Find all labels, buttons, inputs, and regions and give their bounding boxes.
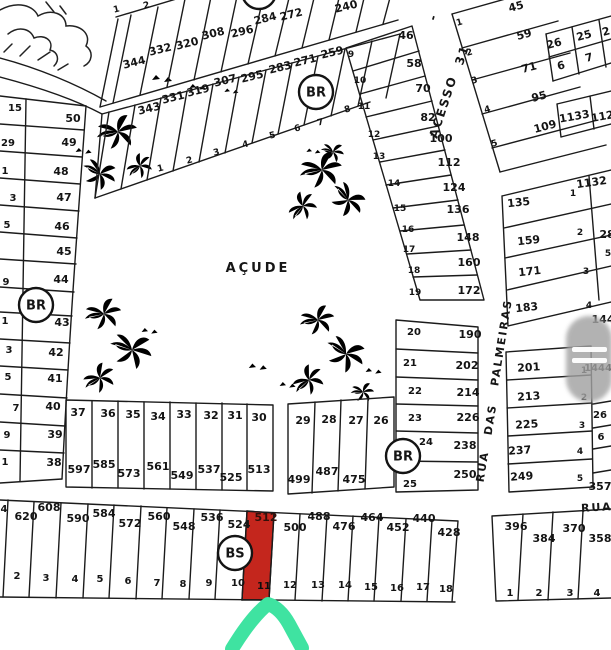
lot-number-label: 213 [517, 389, 541, 404]
lot-number-label: 307 [212, 72, 237, 90]
lot-number-label: 18 [439, 584, 453, 595]
lot-number-label: 13 [311, 580, 325, 591]
lot-number-label: 1 [507, 588, 514, 599]
lot-number-label: 58 [406, 57, 421, 70]
lot-number-label: 2 [601, 24, 611, 39]
lot-number-label: 240 [333, 0, 359, 16]
lot-number-label: 29 [295, 414, 310, 427]
lot-number-label: 26 [545, 35, 563, 52]
lot-number-label: 1 [455, 17, 464, 28]
lot-number-label: 4 [483, 104, 492, 115]
lot-number-label: 10 [354, 76, 367, 86]
lot-number-label: 524 [228, 518, 251, 531]
lot-number-label: 148 [457, 231, 480, 244]
lot-number-label: 620 [15, 510, 38, 523]
lot-number-label: 1 [2, 457, 9, 468]
junction-marker-circle [242, 0, 276, 9]
lot-number-label: 271 [292, 52, 317, 70]
lot-number-label: 42 [48, 346, 63, 359]
pond-label: AÇUDE [226, 261, 291, 276]
junction-marker-bs-3: BS [218, 536, 252, 570]
lot-number-label: 9 [348, 50, 354, 60]
lot-number-label: 43 [54, 316, 69, 329]
lot-number-label: 59 [515, 26, 533, 43]
lot-number-label: 2 [536, 588, 543, 599]
lot-number-label: 171 [518, 264, 542, 279]
lot-number-label: 5 [97, 574, 104, 585]
lot-number-label: 47 [56, 191, 71, 204]
lot-number-label: 27 [348, 414, 363, 427]
marker-circle [242, 0, 276, 9]
lot-number-label: 1 [156, 163, 164, 174]
lot-number-label: 136 [447, 203, 470, 216]
lot-number-label: 4 [577, 447, 583, 457]
lot-number-label: 3 [470, 75, 479, 86]
lot-number-label: 49 [61, 136, 76, 149]
lot-number-label: 15 [394, 204, 407, 214]
lot-number-label: 9 [3, 277, 10, 288]
lot-number-label: 112 [590, 108, 611, 125]
lot-number-label: 1 [2, 316, 9, 327]
lot-number-label: 35 [125, 408, 140, 421]
lot-number-label: 525 [220, 471, 243, 484]
gray-overlay-badge[interactable] [566, 316, 611, 402]
highlighted-lot-value: 512 [255, 511, 278, 524]
lot-number-label: 283 [267, 59, 292, 77]
street-name-label: 31 [452, 43, 472, 67]
lot-number-label: 32 [203, 409, 218, 422]
lot-number-label: 8 [343, 104, 351, 115]
lot-number-label: 21 [403, 358, 417, 369]
lot-number-label: 16 [390, 583, 404, 594]
lot-number-label: 29 [1, 138, 15, 149]
lot-number-label: 9 [206, 578, 213, 589]
corner-scrub [0, 5, 91, 66]
lot-number-label: 39 [47, 428, 62, 441]
lot-number-label: 585 [93, 458, 116, 471]
lot-number-label: 572 [119, 517, 142, 530]
lot-number-label: 7 [584, 50, 595, 65]
lot-number-label: 548 [173, 520, 196, 533]
lot-number-label: 6 [556, 58, 567, 73]
lot-number-label: 4 [1, 504, 8, 515]
lot-number-label: 14 [388, 179, 401, 189]
lot-number-label: 440 [413, 512, 436, 525]
lot-number-label: 549 [171, 469, 194, 482]
lot-number-label: 5 [4, 220, 11, 231]
street-name-label: RUA [581, 500, 611, 515]
lot-number-label: 370 [563, 522, 586, 535]
lot-number-label: 46 [54, 220, 70, 233]
lot-number-label: 40 [45, 400, 61, 413]
lot-number-label: 476 [333, 520, 356, 533]
lot-number-label: 124 [443, 181, 466, 194]
lot-number-label: 12 [368, 130, 381, 140]
lot-number-label: 487 [316, 465, 339, 478]
marker-label: BR [306, 86, 326, 101]
lot-number-label: 3 [6, 345, 13, 356]
lot-number-label: 573 [118, 467, 141, 480]
lot-number-label: 2 [142, 0, 150, 11]
lot-number-label: 3 [43, 573, 50, 584]
lot-number-label: 34 [150, 410, 166, 423]
lot-number-label: 22 [408, 386, 422, 397]
lot-number-label: 320 [174, 34, 200, 52]
lot-number-label: 33 [176, 408, 191, 421]
lot-number-label: 70 [415, 82, 431, 95]
lot-number-label: 13 [373, 152, 386, 162]
lot-number-label: 1 [2, 166, 9, 177]
lot-number-label: 10 [231, 578, 245, 589]
lot-number-label: 1132 [575, 174, 607, 191]
lot-number-label: 536 [201, 511, 224, 524]
cadastral-map-canvas: 512 11 123443323203082962842722403433313… [0, 0, 611, 650]
lot-number-label: 7 [316, 117, 324, 128]
lot-number-label: 3 [10, 193, 17, 204]
marker-label: BS [225, 547, 244, 562]
lot-number-label: 3 [212, 147, 220, 158]
lot-number-label: 4 [72, 574, 79, 585]
marker-label: BR [26, 299, 46, 314]
lot-number-label: 26 [593, 410, 607, 421]
lot-number-label: 584 [93, 507, 116, 520]
lot-number-label: 159 [517, 233, 541, 248]
lot-number-label: 8 [180, 579, 187, 590]
lot-number-label: 238 [454, 439, 477, 452]
lot-number-label: 19 [409, 288, 422, 298]
lot-number-label: 561 [147, 460, 170, 473]
lot-number-label: 112 [438, 156, 461, 169]
lot-number-label: 214 [457, 386, 480, 399]
lot-number-label: 172 [458, 284, 481, 297]
lot-number-label: 135 [507, 195, 531, 210]
lot-number-label: 3 [567, 588, 574, 599]
lot-number-label: 284 [252, 9, 278, 27]
lot-number-label: 344 [121, 53, 147, 71]
lot-number-label: 183 [515, 300, 539, 315]
lot-number-label: 6 [293, 123, 301, 134]
lot-number-label: 201 [517, 360, 541, 375]
lot-number-label: 5 [268, 130, 276, 141]
lot-number-label: 38 [46, 456, 61, 469]
lot-number-label: 357 [589, 480, 611, 493]
junction-marker-br-0: BR [299, 75, 333, 109]
lot-number-label: 15 [364, 582, 378, 593]
lot-number-label: 12 [283, 580, 297, 591]
lot-number-label: 95 [530, 88, 548, 105]
lot-number-label: 499 [288, 473, 311, 486]
lot-number-label: 9 [4, 430, 11, 441]
lot-number-label: 190 [459, 328, 482, 341]
street-name-label: RUA [474, 450, 492, 483]
lot-number-label: 20 [407, 327, 421, 338]
lot-number-label: 5 [490, 138, 499, 149]
lot-number-label: 37 [70, 406, 85, 419]
lot-number-label: 452 [387, 521, 410, 534]
lot-number-label: 5 [605, 249, 611, 259]
lot-number-label: 31 [227, 409, 242, 422]
lot-number-label: 14 [338, 580, 352, 591]
lot-number-label: 2 [14, 571, 21, 582]
marker-label: BR [393, 450, 413, 465]
lot-number-label: 296 [229, 22, 255, 40]
lot-number-label: 26 [373, 414, 389, 427]
lot-number-label: 6 [598, 432, 605, 443]
lot-number-label: 237 [508, 443, 532, 458]
lot-number-label: 18 [408, 266, 421, 276]
lot-number-label: 160 [458, 256, 481, 269]
lot-number-label: 15 [8, 103, 22, 114]
lot-number-label: 3 [583, 267, 589, 277]
lot-number-label: 295 [239, 68, 264, 86]
lot-number-label: 225 [515, 417, 539, 432]
corner-scrub [8, 29, 57, 66]
lot-number-label: 25 [403, 479, 417, 490]
lot-number-label: 5 [5, 372, 12, 383]
lot-number-label: 428 [438, 526, 461, 539]
highlight-arrow [232, 604, 302, 649]
lot-number-label: 48 [53, 165, 68, 178]
lot-number-label: 475 [343, 473, 366, 486]
lot-number-label: 1 [570, 189, 576, 199]
street-name-label: PALMEIRAS [488, 298, 515, 387]
lot-number-label: 384 [533, 532, 556, 545]
lot-number-label: 319 [185, 82, 210, 100]
cadastral-map: 512 11 123443323203082962842722403433313… [0, 0, 611, 650]
lot-number-label: 28 [321, 413, 336, 426]
lot-number-label: 25 [575, 27, 593, 44]
street-name-label: ACESSO [426, 74, 459, 140]
lot-number-label: 537 [198, 463, 221, 476]
lot-number-label: 45 [56, 245, 71, 258]
lot-number-label: 272 [278, 6, 303, 24]
lot-number-label: 2 [577, 228, 583, 238]
lot-number-label: 17 [403, 245, 416, 255]
lot-number-label: 6 [125, 576, 132, 587]
lot-number-label: 259 [319, 44, 344, 62]
street-name-label: - [425, 11, 440, 22]
overlay-bar [572, 358, 607, 363]
lot-number-label: 7 [13, 403, 20, 414]
lot-number-label: 464 [361, 511, 384, 524]
lot-number-label: 28 [599, 228, 611, 241]
lot-number-label: 513 [248, 463, 271, 476]
lot-number-label: 358 [589, 532, 611, 545]
lot-number-label: 590 [67, 512, 90, 525]
lot-number-label: 109 [532, 117, 558, 136]
lot-number-label: 5 [577, 474, 583, 484]
lot-number-label: 23 [408, 413, 422, 424]
lot-number-label: 4 [594, 588, 601, 599]
lot-number-label: 4 [586, 301, 592, 311]
lot-number-label: 560 [148, 510, 171, 523]
lot-number-label: 3 [579, 421, 585, 431]
overlay-bar [572, 347, 607, 352]
lot-number-label: 396 [505, 520, 528, 533]
lot-number-label: 36 [100, 407, 116, 420]
junction-marker-br-1: BR [19, 288, 53, 322]
lot-number-label: 249 [510, 469, 534, 484]
lot-number-label: 597 [68, 463, 91, 476]
lot-number-label: 30 [251, 411, 267, 424]
lot-number-label: 202 [456, 359, 479, 372]
lot-number-label: 226 [457, 411, 480, 424]
lot-number-label: 4 [241, 139, 249, 150]
street-name-label: DAS [482, 403, 500, 436]
lot-number-label: 608 [38, 501, 61, 514]
lot-number-label: 50 [65, 112, 81, 125]
lot-number-label: 2 [185, 155, 193, 166]
lot-number-label: 17 [416, 582, 430, 593]
lot-number-label: 488 [308, 510, 331, 523]
junction-marker-br-2: BR [386, 439, 420, 473]
lot-number-label: 331 [160, 89, 185, 107]
lot-number-label: 1 [112, 4, 120, 15]
lot-number-label: 41 [47, 372, 62, 385]
lot-number-label: 71 [520, 59, 538, 76]
lot-number-label: 7 [154, 578, 161, 589]
lot-number-label: 16 [402, 225, 415, 235]
lot-number-label: 11 [358, 102, 371, 112]
highlighted-lot-number: 11 [257, 581, 271, 592]
lot-number-label: 46 [398, 29, 414, 42]
lot-number-label: 44 [53, 273, 69, 286]
lot-number-label: 24 [419, 437, 433, 448]
lot-number-label: 45 [507, 0, 525, 15]
lot-number-label: 500 [284, 521, 307, 534]
